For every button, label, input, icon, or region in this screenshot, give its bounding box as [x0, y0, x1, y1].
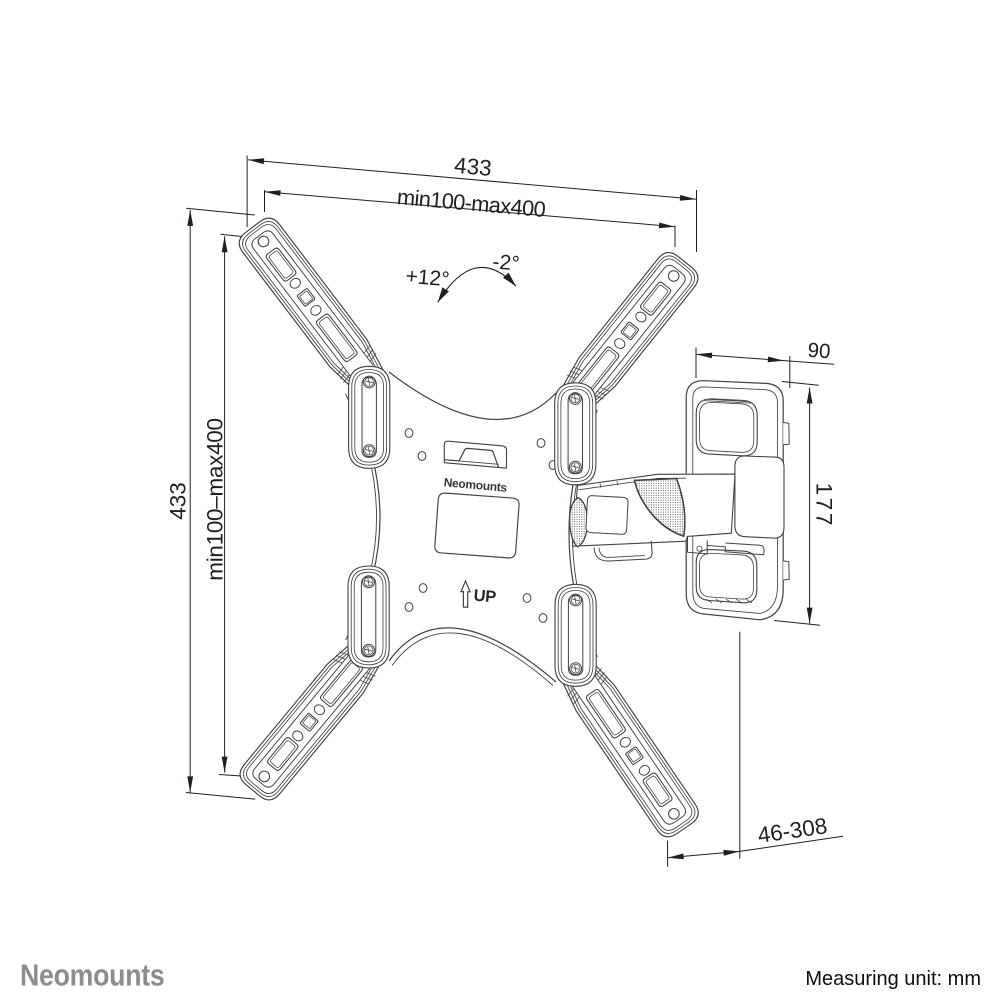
svg-text:UP: UP [473, 587, 497, 607]
svg-text:-2°: -2° [492, 250, 521, 275]
svg-text:Measuring unit: mm: Measuring unit: mm [805, 968, 981, 990]
svg-text:433: 433 [166, 482, 191, 520]
svg-text:+12°: +12° [405, 265, 451, 292]
svg-text:min100–max400: min100–max400 [203, 418, 228, 580]
svg-text:Neomounts: Neomounts [20, 959, 165, 993]
svg-text:433: 433 [453, 153, 493, 181]
svg-text:90: 90 [807, 339, 832, 364]
svg-text:177: 177 [812, 483, 837, 528]
